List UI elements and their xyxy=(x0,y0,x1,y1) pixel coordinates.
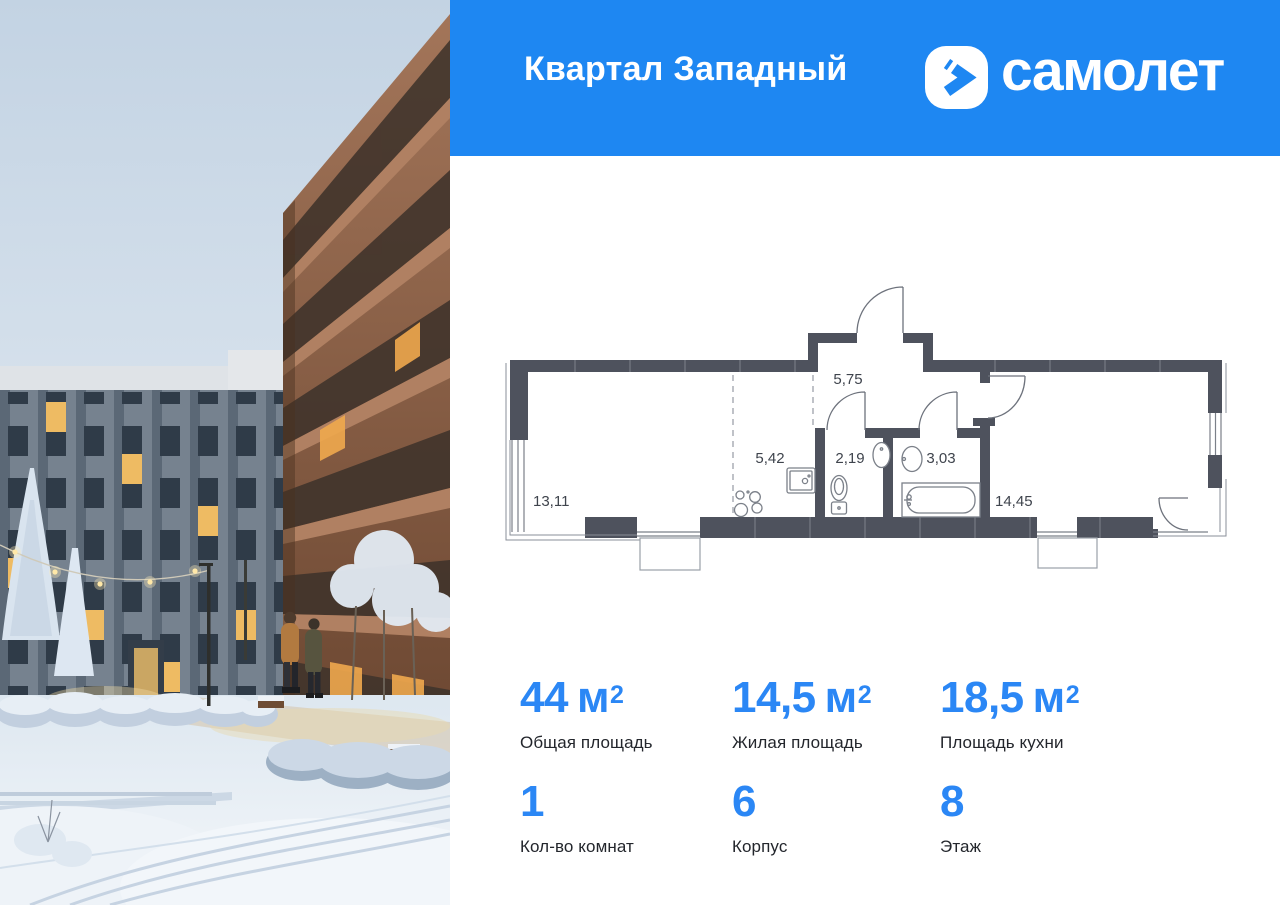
stat-label: Жилая площадь xyxy=(732,733,947,753)
balconies xyxy=(640,538,1097,570)
stat-label: Площадь кухни xyxy=(940,733,1155,753)
room-label-living: 13,11 xyxy=(533,493,569,510)
info-panel: Квартал Западный самолет xyxy=(450,0,1280,905)
stat-label: Корпус xyxy=(732,837,947,857)
samolet-arrow-icon xyxy=(925,46,988,109)
toilet xyxy=(831,476,847,515)
stat-value: 44м2 xyxy=(520,676,735,720)
facade-outline xyxy=(506,363,1226,540)
lamp-pole xyxy=(207,566,211,706)
bathtub xyxy=(902,483,980,517)
wc-sink xyxy=(873,443,890,468)
stove xyxy=(735,491,763,517)
plan-walls xyxy=(510,333,1222,538)
brand-name: самолет xyxy=(1001,40,1224,103)
room-label-bedroom: 14,45 xyxy=(995,493,1033,510)
room-label-bathroom: 3,03 xyxy=(926,450,955,467)
stat-value: 1 xyxy=(520,780,735,824)
building-photo xyxy=(0,0,450,905)
stat-rooms-count: 1 Кол-во комнат xyxy=(520,780,735,857)
bathroom-sink xyxy=(902,447,922,472)
stat-building-number: 6 Корпус xyxy=(732,780,947,857)
room-labels: 13,11 5,42 2,19 5,75 3,03 14,45 xyxy=(533,371,1033,510)
apartment-listing-card: Квартал Западный самолет xyxy=(0,0,1280,905)
kitchen-sink xyxy=(787,468,815,493)
stat-floor-number: 8 Этаж xyxy=(940,780,1155,857)
courtyard xyxy=(0,692,450,905)
room-label-wc: 2,19 xyxy=(835,450,864,467)
room-label-hallway: 5,75 xyxy=(833,371,862,388)
room-label-kitchen: 5,42 xyxy=(755,450,784,467)
winter-courtyard-scene xyxy=(0,0,450,905)
stat-value: 6 xyxy=(732,780,947,824)
project-title: Квартал Западный xyxy=(524,50,848,89)
floor-plan: 13,11 5,42 2,19 5,75 3,03 14,45 xyxy=(500,283,1230,578)
stat-value: 18,5м2 xyxy=(940,676,1155,720)
wall-seams xyxy=(575,360,1160,538)
stat-living-area: 14,5м2 Жилая площадь xyxy=(732,676,947,753)
header-bar: Квартал Западный самолет xyxy=(450,0,1280,156)
zone-dividers xyxy=(733,375,813,517)
stat-value: 8 xyxy=(940,780,1155,824)
stat-label: Кол-во комнат xyxy=(520,837,735,857)
stat-total-area: 44м2 Общая площадь xyxy=(520,676,735,753)
stat-label: Этаж xyxy=(940,837,1155,857)
stat-label: Общая площадь xyxy=(520,733,735,753)
stat-kitchen-area: 18,5м2 Площадь кухни xyxy=(940,676,1155,753)
stat-value: 14,5м2 xyxy=(732,676,947,720)
